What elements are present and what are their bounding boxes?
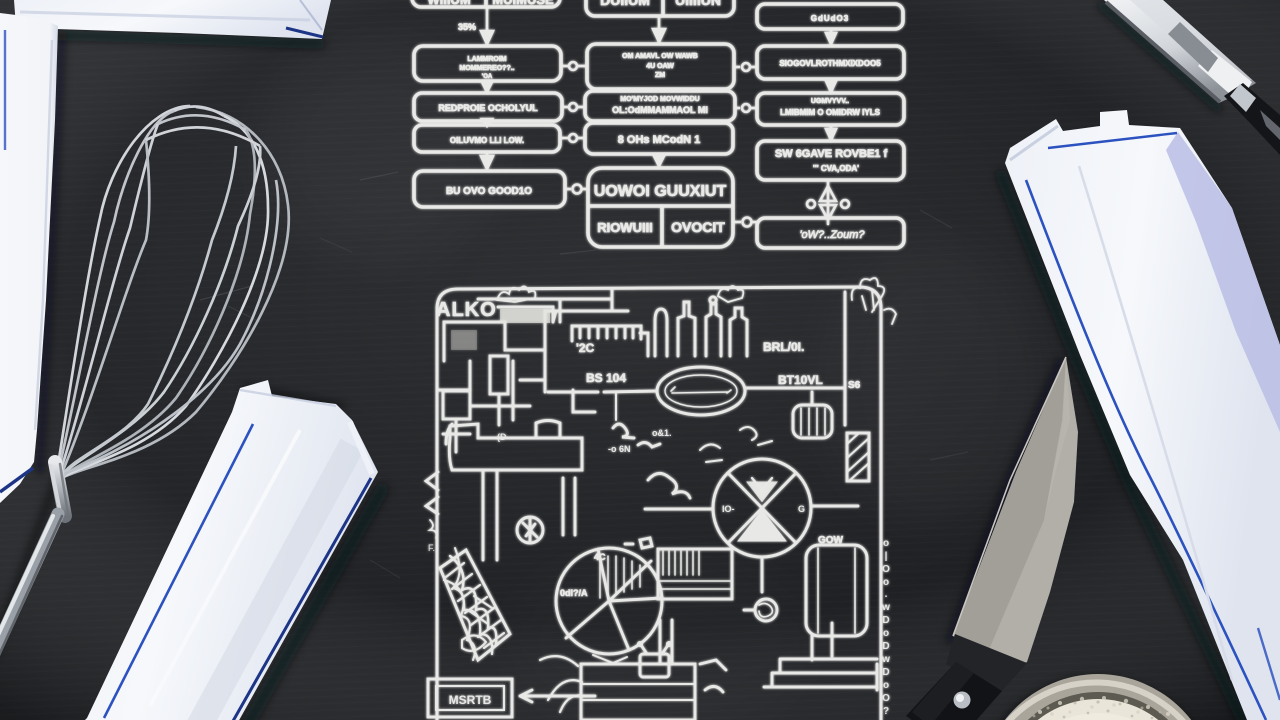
svg-text:35%: 35% [458, 22, 476, 32]
svg-text:SW 6GAVE ROVBE1 f: SW 6GAVE ROVBE1 f [775, 148, 888, 160]
svg-text:ALKO: ALKO [436, 299, 497, 321]
svg-text:D: D [882, 641, 889, 652]
svg-text:DUIIUM: DUIIUM [600, 0, 650, 8]
svg-text:o: o [883, 680, 889, 691]
svg-text:MSRTB: MSRTB [449, 693, 492, 707]
svg-text:D: D [882, 667, 889, 678]
svg-text:'OA: 'OA [482, 74, 493, 80]
svg-text:?: ? [883, 706, 889, 717]
svg-text:(D-: (D- [497, 432, 510, 442]
svg-text:BRL/0I.: BRL/0I. [763, 340, 804, 354]
svg-text:ZM: ZM [655, 72, 665, 79]
svg-text:IO-: IO- [722, 504, 735, 514]
svg-text:UGMVYVV..: UGMVYVV.. [811, 98, 849, 105]
svg-text:OVOCIT: OVOCIT [671, 219, 725, 235]
svg-text:o: o [883, 538, 889, 549]
svg-text:MO'MYJOD MOVWIDDU: MO'MYJOD MOVWIDDU [620, 96, 699, 103]
svg-text:''' CVA,ODA': ''' CVA,ODA' [813, 164, 859, 173]
svg-text:o: o [883, 628, 889, 639]
svg-text:w: w [881, 654, 890, 665]
svg-text:8 OHs MCodN 1: 8 OHs MCodN 1 [618, 134, 701, 146]
svg-text:O: O [882, 564, 890, 575]
svg-text:SIOGOVLROTHMXIXDOO5: SIOGOVLROTHMXIXDOO5 [779, 59, 881, 68]
svg-text:O: O [882, 693, 890, 704]
svg-text:LAMMROIM: LAMMROIM [467, 56, 506, 63]
svg-text:MOMMEREO??..: MOMMEREO??.. [459, 65, 514, 72]
svg-text:GdUdO3: GdUdO3 [811, 14, 849, 23]
svg-text:WIIIUM: WIIIUM [427, 0, 470, 7]
svg-text:w: w [881, 602, 890, 613]
svg-text:|: | [885, 551, 888, 562]
svg-text:4U OAW: 4U OAW [646, 63, 674, 70]
svg-text:BT10VL: BT10VL [778, 373, 823, 387]
svg-text:F.: F. [428, 543, 435, 553]
svg-text:o&1.: o&1. [652, 428, 672, 438]
svg-text:OM AMAVL OW WAWB: OM AMAVL OW WAWB [622, 53, 698, 60]
svg-text:MUIMUSE: MUIMUSE [492, 0, 554, 7]
svg-text:o: o [883, 577, 889, 588]
svg-text:D: D [882, 615, 889, 626]
svg-text:G: G [798, 504, 805, 514]
svg-text:-o 6N: -o 6N [608, 444, 631, 454]
svg-text:'2C: '2C [576, 341, 595, 355]
svg-text:BS 104: BS 104 [586, 371, 626, 385]
svg-text:'oW?..Zoum?: 'oW?..Zoum? [799, 229, 865, 241]
svg-text:RIOWUIII: RIOWUIII [597, 220, 653, 235]
svg-text:UIIIIUN: UIIIIUN [675, 0, 721, 8]
svg-text:UOWOI GUUXIUT: UOWOI GUUXIUT [594, 183, 727, 200]
svg-text:LMIBMIM O OMIDRW IYLS: LMIBMIM O OMIDRW IYLS [780, 108, 881, 117]
svg-text:.: . [885, 589, 888, 600]
svg-text:OL:OdMMAMMAOL MI: OL:OdMMAMMAOL MI [612, 105, 708, 115]
